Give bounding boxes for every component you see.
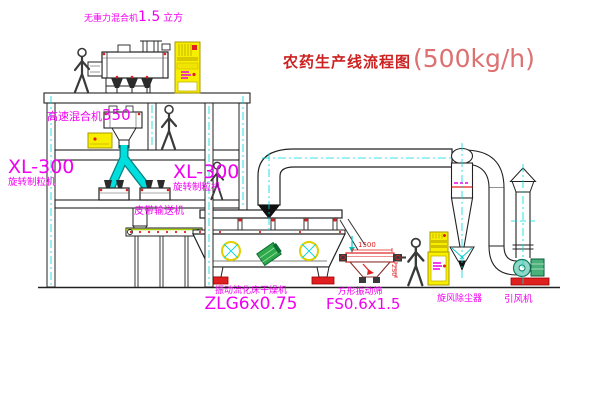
worker-roof <box>75 49 89 93</box>
worker-sieve <box>408 239 423 286</box>
title-capacity: (500kg/h) <box>413 44 535 73</box>
cabinet-indicator <box>192 45 197 50</box>
label-granulator-right: XL-300 旋转制粒机 <box>173 163 239 193</box>
label-granulator-left: XL-300 旋转制粒机 <box>8 158 74 188</box>
label-fan: 引风机 <box>504 295 533 305</box>
diagram-title: 农药生产线流程图 (500kg/h) <box>283 44 535 73</box>
label-cyclone: 旋风除尘器 <box>437 295 482 304</box>
title-text: 农药生产线流程图 <box>283 51 411 72</box>
label-sieve: 方形振动筛 FS0.6x1.5 <box>326 288 394 313</box>
label-belt-conveyor: 皮带输送机 <box>134 207 184 218</box>
building-column <box>205 103 213 287</box>
process-flow-diagram: 农药生产线流程图 (500kg/h) 无重力混合机1.5 立方 高速混合机350… <box>0 0 600 403</box>
sieve-height-dimension: 250 <box>390 264 398 276</box>
control-cabinet-top <box>175 42 200 93</box>
label-high-speed-mixer: 高速混合机350 <box>47 108 131 124</box>
label-dryer: 振动流化床干燥机 ZLG6x0.75 <box>196 287 306 314</box>
worker-floor2 <box>162 106 176 150</box>
control-cabinet-bottom <box>428 232 449 285</box>
fan-motor <box>531 259 544 276</box>
gravity-free-mixer <box>88 41 170 93</box>
fan-base <box>511 278 549 285</box>
sieve-width-dimension: 1500 <box>358 241 376 249</box>
label-gravity-mixer: 无重力混合机1.5 立方 <box>84 10 183 25</box>
fluid-bed-dryer-unit <box>193 210 365 284</box>
